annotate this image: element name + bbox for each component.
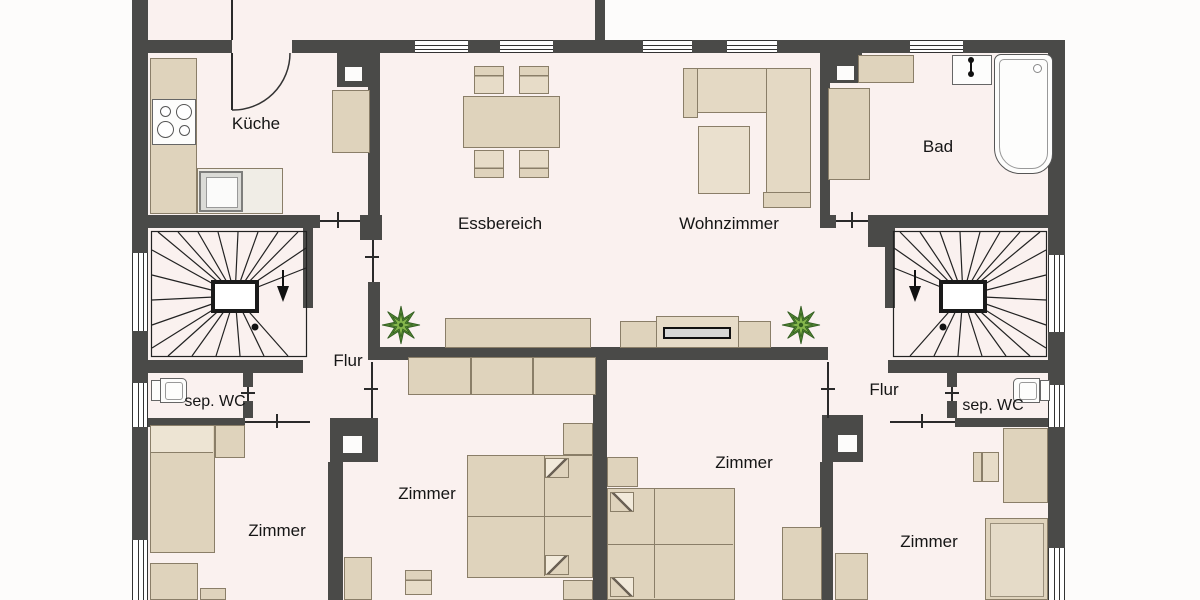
- sofa: [408, 357, 596, 395]
- sofa-cushion: [471, 357, 534, 395]
- wall: [243, 373, 253, 387]
- dining-chair: [474, 150, 504, 178]
- bed-pillow: [545, 555, 569, 575]
- wall-niche: [837, 66, 854, 80]
- tv-screen: [663, 327, 731, 339]
- nightstand: [563, 423, 593, 455]
- room-label-wc-right: sep. WC: [962, 397, 1023, 415]
- burner: [179, 125, 190, 136]
- bed: [150, 425, 215, 553]
- door-tick: [851, 212, 853, 228]
- room-label-wc-left: sep. WC: [184, 393, 245, 411]
- dresser: [200, 588, 226, 600]
- bed: [985, 518, 1048, 600]
- wall-niche: [345, 67, 362, 81]
- bed-divider: [468, 516, 591, 517]
- door-tick: [821, 388, 835, 390]
- door-tick: [945, 392, 959, 394]
- wardrobe: [782, 527, 822, 600]
- burner: [157, 121, 174, 138]
- door-tick: [364, 388, 378, 390]
- wall-niche: [838, 435, 857, 452]
- door-swing-arc: [231, 53, 293, 113]
- sofa-armrest: [763, 192, 811, 208]
- bathroom-cabinet: [828, 88, 870, 180]
- wall: [148, 215, 320, 228]
- wall: [868, 215, 895, 247]
- nightstand: [607, 457, 638, 487]
- door-threshold: [372, 240, 374, 282]
- stove: [152, 99, 196, 145]
- faucet-dot: [968, 71, 974, 77]
- room-label-flur-left: Flur: [333, 351, 362, 371]
- dresser: [150, 563, 198, 600]
- toilet: [1040, 380, 1050, 401]
- bathtub-drain: [1033, 64, 1042, 73]
- door-threshold: [247, 387, 249, 401]
- wall: [955, 418, 1048, 427]
- plant: [781, 305, 821, 345]
- kitchen-cabinet: [332, 90, 370, 153]
- nightstand: [563, 580, 593, 600]
- wall: [148, 360, 303, 373]
- door-tick: [337, 212, 339, 228]
- double-bed: [467, 455, 593, 578]
- wall: [868, 215, 1048, 228]
- room-label-zimmer-bottom-right: Zimmer: [900, 532, 958, 552]
- wall: [888, 360, 1048, 373]
- room-label-wohnzimmer: Wohnzimmer: [679, 214, 779, 234]
- door-tick: [276, 414, 278, 428]
- toilet-bowl: [165, 382, 183, 400]
- burner: [176, 104, 192, 120]
- room-label-zimmer-mid-right: Zimmer: [715, 453, 773, 473]
- sofa-armrest: [683, 68, 698, 118]
- window: [910, 40, 963, 53]
- plant: [381, 305, 421, 345]
- bed-pillow: [610, 577, 634, 597]
- window: [132, 253, 148, 331]
- window: [1048, 255, 1065, 332]
- dining-chair: [519, 66, 549, 94]
- window: [132, 540, 148, 600]
- door-tick: [365, 256, 379, 258]
- door-leaf: [231, 0, 233, 40]
- coffee-table: [698, 126, 750, 194]
- door-tick: [921, 414, 923, 428]
- bathroom-cabinet: [858, 55, 914, 83]
- tv-board: [620, 321, 657, 348]
- bed-pillow: [610, 492, 634, 512]
- staircase-right: [892, 230, 1048, 358]
- window: [132, 383, 148, 427]
- wall: [360, 215, 382, 240]
- wall: [595, 0, 605, 40]
- door-opening: [232, 40, 292, 53]
- room-label-bad: Bad: [923, 137, 953, 157]
- bed-mattress: [990, 523, 1044, 597]
- bathtub: [994, 54, 1053, 174]
- door-threshold: [827, 362, 829, 418]
- window: [727, 40, 777, 53]
- window: [415, 40, 468, 53]
- corner-sofa: [766, 68, 811, 208]
- window: [1048, 385, 1065, 427]
- burner: [160, 106, 171, 117]
- floor-plan: Küche Essbereich Wohnzimmer Bad Flur sep…: [0, 0, 1200, 600]
- bed-pillow: [545, 458, 569, 478]
- floor-upper-room: [148, 0, 595, 40]
- desk-chair: [973, 452, 999, 482]
- window: [500, 40, 553, 53]
- window: [643, 40, 692, 53]
- washbasin: [952, 55, 992, 85]
- door-threshold: [951, 387, 953, 401]
- desk: [1003, 428, 1048, 503]
- room-label-zimmer-bottom-left: Zimmer: [248, 521, 306, 541]
- wardrobe: [835, 553, 868, 600]
- wall: [947, 401, 957, 418]
- wall: [820, 215, 836, 228]
- toilet: [160, 378, 187, 403]
- room-label-kueche: Küche: [232, 114, 280, 134]
- sofa-cushion: [533, 357, 596, 395]
- staircase-left: [150, 230, 308, 358]
- bathtub-inner: [999, 59, 1048, 169]
- nightstand: [215, 425, 245, 458]
- stool: [405, 570, 432, 595]
- window: [1048, 548, 1065, 600]
- kitchen-sink: [199, 171, 243, 212]
- room-label-essbereich: Essbereich: [458, 214, 542, 234]
- door-threshold: [320, 220, 360, 222]
- dresser: [344, 557, 372, 600]
- bed-divider: [608, 544, 733, 545]
- sideboard: [445, 318, 591, 348]
- bed-pillow: [151, 426, 213, 453]
- room-label-zimmer-mid-left: Zimmer: [398, 484, 456, 504]
- sink-basin: [206, 177, 238, 208]
- faucet-dot: [968, 57, 974, 63]
- wall: [328, 462, 343, 600]
- wall: [368, 282, 380, 347]
- tv-board: [738, 321, 771, 348]
- door-threshold: [371, 362, 373, 418]
- wall: [605, 347, 828, 360]
- wall-niche: [343, 436, 362, 453]
- dining-chair: [519, 150, 549, 178]
- room-label-flur-right: Flur: [869, 380, 898, 400]
- wall: [947, 373, 957, 387]
- dining-table: [463, 96, 560, 148]
- dining-chair: [474, 66, 504, 94]
- bed-head-line: [654, 489, 655, 598]
- sofa-cushion: [408, 357, 471, 395]
